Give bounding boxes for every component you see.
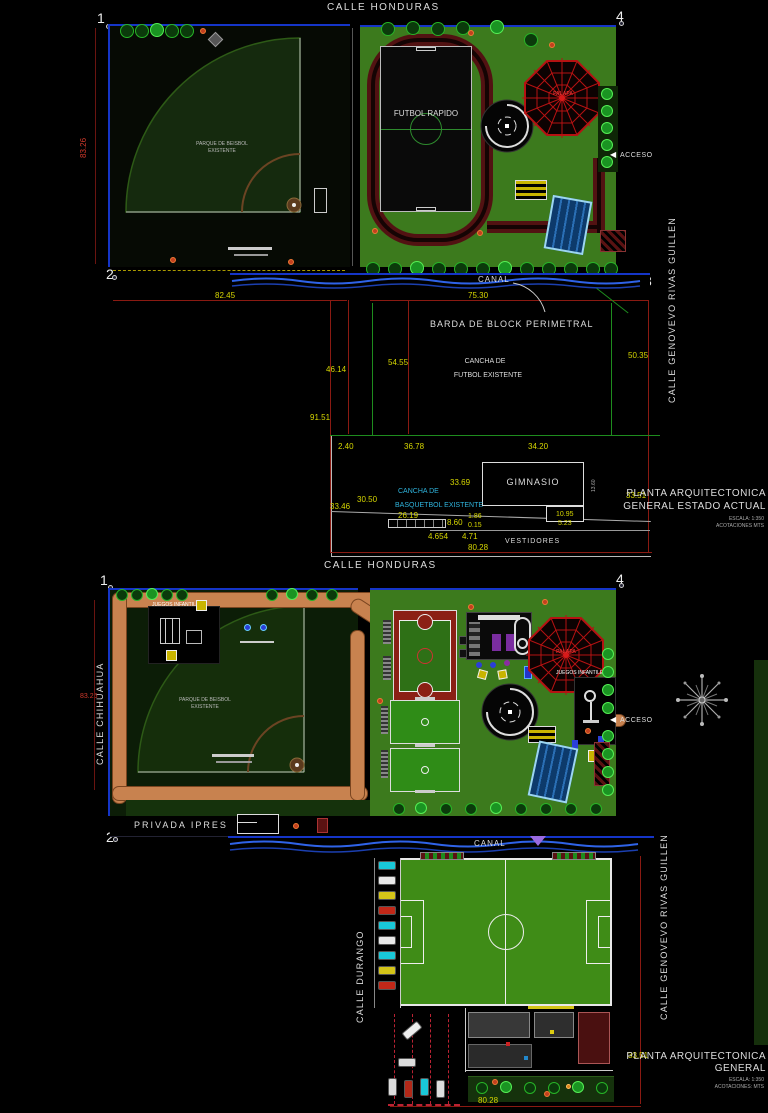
tree-icon [146, 588, 158, 600]
street-label-honduras-proposed: CALLE HONDURAS [324, 561, 437, 571]
dim-186: 1.86 [468, 513, 482, 520]
acceso-label-proposed: ACCESO [620, 717, 653, 724]
bush-icon [293, 823, 299, 829]
dim-line [390, 1106, 641, 1107]
site-line [331, 511, 651, 522]
building-block [578, 1012, 610, 1064]
dot-icon [524, 1056, 528, 1060]
court-key [417, 682, 433, 698]
court-center-circle [417, 648, 433, 664]
ballpark-label-line1: PARQUE DE BEISBOL [165, 698, 245, 703]
ramp-icon [492, 634, 501, 651]
bush-icon [566, 1084, 571, 1089]
bush-icon [477, 230, 483, 236]
site-line [331, 556, 651, 557]
boundary-arc [505, 280, 550, 315]
dim-3369: 33.69 [450, 479, 470, 487]
titleblock-existing-line1: PLANTA ARQUITECTONICA [626, 489, 766, 499]
car-icon [378, 966, 396, 975]
street-label-chihuahua: CALLE CHIHUAHUA [96, 662, 105, 765]
home-plate-dot [295, 763, 299, 767]
dim-1360: 13.60 [592, 479, 597, 492]
bush-icon [544, 1091, 550, 1097]
bush-icon [372, 228, 378, 234]
walk-path [112, 786, 368, 801]
tree-icon [515, 803, 527, 815]
tree-icon [440, 803, 452, 815]
bleachers [228, 247, 272, 250]
parcel-baseball-existing: PARQUE DE BEISBOL EXISTENTE [108, 24, 350, 267]
tree-icon [465, 803, 477, 815]
ballpark-label-line1: PARQUE DE BEISBOL [182, 142, 262, 147]
marker-node-icon [112, 275, 117, 280]
tree-icon [602, 730, 614, 742]
home-plate-dot [292, 203, 296, 207]
tree-icon [266, 589, 278, 601]
gimnasio-label: GIMNASIO [482, 478, 584, 487]
cancha-basquet-label2: BASQUETBOL EXISTENTE [395, 502, 483, 509]
parcel-baseball-proposed: PARQUE DE BEISBOL EXISTENTE [108, 588, 358, 816]
bleachers [381, 750, 388, 778]
bench-icon [490, 662, 496, 668]
kiosk-icon [166, 650, 177, 661]
dashed-boundary [113, 270, 345, 271]
court-key [417, 614, 433, 630]
dim-015: 0.15 [468, 522, 482, 529]
building-block [468, 1012, 530, 1038]
bleachers [216, 761, 252, 763]
cad-site-plan-canvas: CALLE HONDURAS 1 4 2 3 PARQUE DE BEISBOL… [0, 0, 768, 1113]
bleachers-hatched [552, 852, 596, 860]
dim-3050: 30.50 [357, 496, 377, 504]
car-icon [398, 1058, 416, 1067]
car-icon [388, 1078, 397, 1096]
site-line [465, 1070, 613, 1071]
tree-icon [406, 21, 420, 35]
goal-bar [415, 790, 435, 793]
titleblock-existing-line2: GENERAL ESTADO ACTUAL [623, 502, 766, 512]
dim-5035: 50.35 [628, 352, 648, 360]
bush-icon [492, 1079, 498, 1085]
dim-240: 2.40 [338, 443, 354, 451]
tree-icon [116, 589, 128, 601]
center-circle [488, 914, 524, 950]
canopy-strip [528, 1006, 574, 1009]
dim-line [408, 300, 409, 434]
dim-4654: 4.654 [428, 533, 448, 541]
swing-bar [172, 618, 173, 644]
marker-node-icon [619, 583, 624, 588]
bush-icon [200, 28, 206, 34]
court-center-circle [421, 718, 429, 726]
acceso-arrow-icon: ◀ [610, 151, 616, 159]
site-line [430, 530, 650, 531]
playground-equipment-icon [590, 702, 592, 720]
dim-3420: 34.20 [528, 443, 548, 451]
ramp-stack [469, 622, 480, 656]
swing-bar [165, 618, 166, 644]
street-label-durango: CALLE DURANGO [356, 930, 365, 1023]
dim-8326-left-existing: 83.26 [80, 138, 88, 158]
tree-icon [393, 803, 405, 815]
dim-line [640, 856, 641, 1104]
building-outline [314, 188, 327, 213]
dim-line [648, 300, 649, 552]
car-icon [420, 1078, 429, 1096]
cancha-basquet-label1: CANCHA DE [398, 488, 439, 495]
dim-5455: 54.55 [388, 359, 408, 367]
car-icon [378, 921, 396, 930]
walk-path [350, 630, 365, 801]
bleachers [383, 620, 391, 644]
marker-node-icon [113, 837, 118, 842]
bench-icon [504, 660, 510, 666]
perimeter-wall [372, 303, 373, 435]
tree-icon [431, 22, 445, 36]
goal-bar [415, 697, 435, 700]
futbol-rapido-label: FUTBOL RAPIDO [386, 110, 466, 118]
dim-8028-proposed: 80.28 [478, 1097, 498, 1105]
parking-line [430, 1014, 431, 1104]
parcel-divider [352, 28, 353, 266]
cancha-futbol-label1: CANCHA DE [455, 358, 515, 365]
privada-ipres-label: PRIVADA IPRES [134, 821, 228, 830]
car-icon [378, 861, 396, 870]
tree-icon [150, 23, 164, 37]
tree-icon [602, 766, 614, 778]
acceso-label-existing: ACCESO [620, 152, 653, 159]
goal-bar [415, 744, 435, 747]
bench-bar [240, 641, 274, 643]
goal-box [416, 47, 436, 51]
bleachers [234, 254, 268, 256]
tree-icon [306, 589, 318, 601]
tree-icon [476, 1082, 488, 1094]
car-icon [436, 1080, 445, 1098]
cancha-futbol-label2: FUTBOL EXISTENTE [448, 372, 528, 379]
dim-9151: 91.51 [310, 414, 330, 422]
corner-marker-1-existing: 1 [97, 10, 105, 26]
tree-icon [602, 784, 614, 796]
tree-icon [602, 702, 614, 714]
dim-line [113, 300, 347, 301]
site-line [400, 858, 401, 1008]
tree-icon [572, 1081, 584, 1093]
barda-label: BARDA DE BLOCK PERIMETRAL [430, 320, 594, 329]
bleachers [212, 754, 254, 757]
bench-icon [476, 662, 482, 668]
tree-icon [524, 1082, 536, 1094]
site-line [331, 436, 332, 556]
tree-icon [176, 589, 188, 601]
bench-icon [260, 624, 267, 631]
dim-line [348, 300, 349, 434]
perimeter-wall [611, 303, 612, 435]
bush-icon [585, 728, 591, 734]
bush-icon [542, 599, 548, 605]
marker-node-icon [619, 21, 624, 26]
car-icon [378, 951, 396, 960]
street-label-honduras-existing: CALLE HONDURAS [327, 3, 440, 13]
canal-existing [230, 273, 650, 290]
tree-icon [601, 88, 613, 100]
tree-icon [602, 748, 614, 760]
compass-rose-icon [676, 674, 728, 726]
dim-8028-existing: 80.28 [468, 544, 488, 552]
goal-box [598, 916, 610, 948]
dot-icon [550, 1030, 554, 1034]
dim-line [330, 552, 652, 553]
goal-box [400, 916, 412, 948]
tree-icon [120, 24, 134, 38]
dim-1095: 10.95 [556, 511, 574, 518]
street-label-genovevo-existing: CALLE GENOVEVO RIVAS GUILLEN [668, 217, 677, 403]
dim-471: 4.71 [462, 533, 478, 541]
canal-waves [230, 275, 650, 290]
titleblock-proposed-line1: PLANTA ARQUITECTONICA [626, 1052, 766, 1062]
tree-icon [601, 105, 613, 117]
building-block [534, 1012, 574, 1038]
structure-icon [317, 818, 328, 833]
dim-7530: 75.30 [468, 292, 488, 300]
bush-icon [549, 42, 555, 48]
titleblock-existing-units: ACOTACIONES MTS [716, 524, 764, 529]
building-outline [237, 814, 279, 834]
titleblock-existing-scale: ESCALA: 1:350 [729, 517, 764, 522]
car-icon [378, 981, 396, 990]
tree-icon [165, 24, 179, 38]
dim-3346: 33.46 [330, 503, 350, 511]
futbol-rapido-field [380, 46, 472, 212]
bush-icon [288, 259, 294, 265]
building-block [468, 1044, 532, 1068]
tree-icon [602, 666, 614, 678]
tree-icon [596, 1082, 608, 1094]
tree-icon [602, 648, 614, 660]
tree-icon [161, 589, 173, 601]
bleacher-strip [388, 519, 446, 528]
titleblock-proposed-units: ACOTACIONES: MTS [715, 1085, 764, 1090]
building-sign [478, 615, 520, 620]
green-edge-strip [754, 660, 768, 1045]
dim-line [95, 28, 96, 264]
tree-icon [590, 803, 602, 815]
bush-icon [377, 698, 383, 704]
dim-523: 5.23 [558, 520, 572, 527]
dim-860: 8.60 [447, 519, 463, 527]
dim-3678: 36.78 [404, 443, 424, 451]
tree-icon [565, 803, 577, 815]
titleblock-proposed-scale: ESCALA: 1:350 [729, 1078, 764, 1083]
car-icon [378, 936, 396, 945]
building-line [237, 822, 257, 823]
tree-icon [540, 803, 552, 815]
playground-area-left [148, 606, 220, 664]
bench-icon [244, 624, 251, 631]
playground-equipment-icon [584, 690, 596, 702]
car-icon [378, 876, 396, 885]
pool-building [515, 180, 547, 200]
corner-marker-1-proposed: 1 [100, 572, 108, 588]
vestidores-label: VESTIDORES [505, 538, 560, 545]
tree-icon [415, 802, 427, 814]
bleachers [381, 706, 388, 734]
acceso-arrow-icon: ◀ [610, 716, 616, 724]
bleachers [383, 656, 391, 680]
titleblock-proposed-line2: GENERAL [715, 1064, 766, 1074]
dim-4614: 46.14 [326, 366, 346, 374]
tree-icon [490, 802, 502, 814]
tree-icon [524, 33, 538, 47]
goal-box [416, 207, 436, 211]
juegos-infantiles-label-right: JUEGOS INFANTILES [556, 671, 607, 676]
walk-path [112, 592, 127, 804]
bush-icon [468, 30, 474, 36]
tree-icon [180, 24, 194, 38]
tree-icon [490, 20, 504, 34]
table-icon [497, 669, 507, 679]
ballpark-label-line2: EXISTENTE [165, 705, 245, 710]
canal-label-proposed: CANAL [474, 840, 506, 848]
soccer-field [398, 858, 612, 1006]
tree-icon [500, 1081, 512, 1093]
palapa-roof-existing [519, 55, 605, 141]
tree-icon [131, 589, 143, 601]
ballpark-label-line2: EXISTENTE [182, 149, 262, 154]
bleachers-hatched [420, 852, 464, 860]
tree-icon [286, 588, 298, 600]
kiosk-icon [196, 600, 207, 611]
bush-icon [170, 257, 176, 263]
playground-equipment-icon [583, 720, 599, 723]
tree-icon [601, 122, 613, 134]
perimeter-wall [330, 435, 660, 436]
bleacher-steps [600, 230, 626, 252]
tree-icon [135, 24, 149, 38]
swing-icon [160, 618, 180, 644]
tree-icon [602, 684, 614, 696]
juegos-infantiles-label-left: JUEGOS INFANTILES [152, 603, 203, 608]
dim-8245: 82.45 [215, 292, 235, 300]
car-icon [404, 1080, 413, 1098]
palapa-label-proposed: PALAPA [549, 650, 583, 655]
site-line [465, 1008, 466, 1072]
slide-icon [186, 630, 202, 644]
parking-line [448, 1014, 449, 1104]
palapa-label-existing: PALAPA [545, 92, 581, 97]
street-label-genovevo-proposed: CALLE GENOVEVO RIVAS GUILLEN [660, 834, 669, 1020]
tree-icon [326, 589, 338, 601]
tree-icon [381, 22, 395, 36]
car-icon [378, 891, 396, 900]
bush-icon [468, 604, 474, 610]
baseball-outfield [126, 38, 300, 212]
dot-icon [506, 1042, 510, 1046]
car-icon [378, 906, 396, 915]
court-center-circle [421, 766, 429, 774]
